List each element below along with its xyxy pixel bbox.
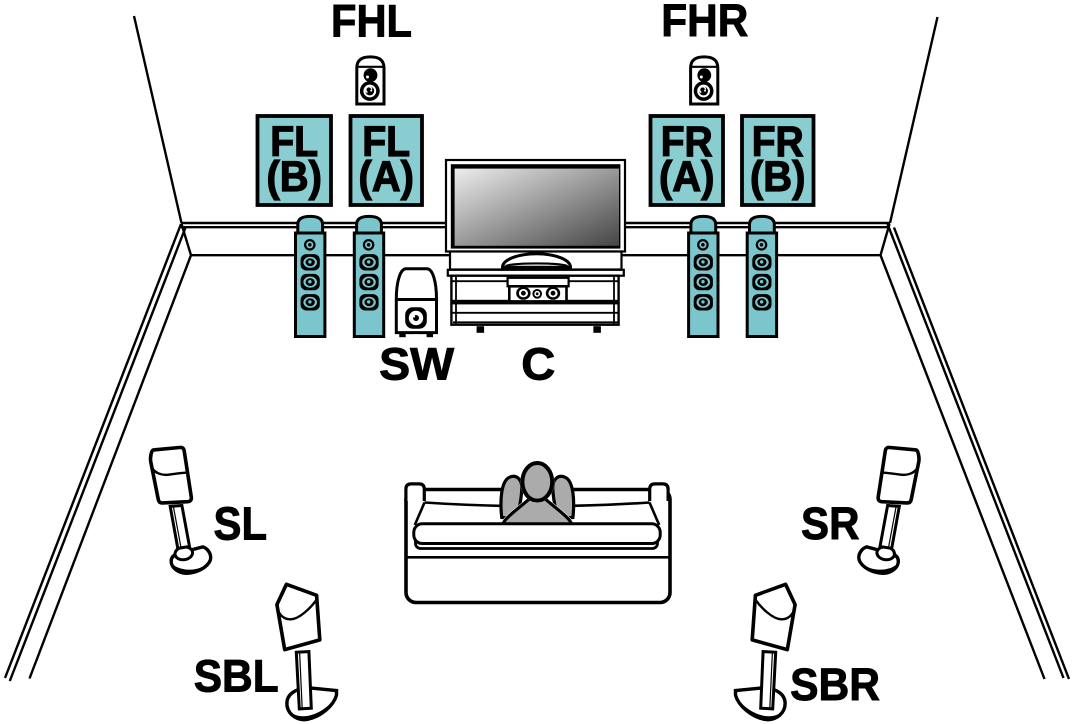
svg-text:FHL: FHL xyxy=(331,0,412,47)
svg-text:SL: SL xyxy=(214,498,268,550)
svg-text:SR: SR xyxy=(801,498,860,549)
svg-text:(A): (A) xyxy=(358,153,414,201)
svg-text:(B): (B) xyxy=(750,153,806,201)
svg-text:C: C xyxy=(521,339,555,390)
svg-text:SBL: SBL xyxy=(194,651,279,702)
svg-text:(B): (B) xyxy=(266,153,322,201)
svg-text:(A): (A) xyxy=(659,153,715,201)
svg-text:SBR: SBR xyxy=(790,659,880,710)
svg-text:SW: SW xyxy=(379,339,455,390)
svg-text:FHR: FHR xyxy=(661,0,748,46)
